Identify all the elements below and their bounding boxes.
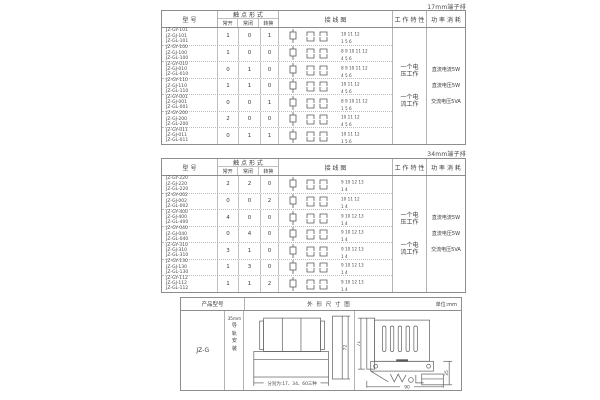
wiring-diagram-cell: 9 10 12 13 1 4 <box>278 210 392 226</box>
normally-closed-count: 4 <box>238 227 260 243</box>
wiring-diagram-cell: 10 11 12 4 5 6 <box>278 112 392 128</box>
model-cell: JZ-GY-010 JZ-GJ-010 JZ-GL-010 <box>162 62 217 78</box>
wiring-diagram: 9 10 12 13 1 4 <box>283 243 387 259</box>
model-cell: JZ-GY-130 JZ-GJ-130 JZ-GL-130 <box>162 260 217 276</box>
table-row: JZ-GY-011 JZ-GJ-011 JZ-GL-011 0 1 1 <box>162 127 392 144</box>
table-row: JZ-GY-110 JZ-GJ-110 JZ-GL-110 1 1 0 <box>162 78 392 95</box>
normally-open-count: 0 <box>217 95 238 111</box>
header-unit: 单位:mm <box>413 298 461 310</box>
normally-closed-count: 3 <box>238 260 260 276</box>
header-normally-closed: 常闭 <box>237 167 257 175</box>
front-height-value: 72 <box>343 345 349 351</box>
normally-closed-count: 0 <box>238 28 260 45</box>
changeover-count: 0 <box>260 243 278 259</box>
coil-icon <box>290 260 296 274</box>
power-line: 直流电流5W <box>432 66 460 73</box>
model-cell: JZ-GY-200 JZ-GJ-200 JZ-GL-200 <box>162 112 217 128</box>
header-contact-title: 触 点 形 式 <box>218 11 278 19</box>
normally-open-count: 0 <box>217 227 238 243</box>
changeover-count: 1 <box>260 95 278 111</box>
work-voltage-label: 一个电压工作 <box>398 212 421 226</box>
work-voltage-label: 一个电压工作 <box>398 64 421 78</box>
model-cell: JZ-GY-101 JZ-GJ-101 JZ-GL-101 <box>162 28 217 45</box>
normally-closed-count: 0 <box>238 46 260 62</box>
header-normally-open: 常开 <box>218 167 237 175</box>
table-row: JZ-GY-101 JZ-GJ-101 JZ-GL-101 1 0 1 <box>162 28 392 45</box>
wiring-diagram: 8 9 10 11 12 4 5 6 <box>283 45 387 61</box>
rail-mount-label: 导轨安装 <box>231 323 238 353</box>
header-model: 型 号 <box>162 11 217 27</box>
header-power-consumption: 功 率 消 耗 <box>426 11 465 27</box>
header-wiring-diagram: 接 线 图 <box>278 11 392 27</box>
terminal-numbers-top: 10 11 12 <box>341 197 360 202</box>
header-power-consumption: 功 率 消 耗 <box>426 159 465 175</box>
model-rows: JZ-GY-220 JZ-GJ-220 JZ-GL-220 2 2 0 <box>162 176 392 292</box>
model-rows: JZ-GY-101 JZ-GJ-101 JZ-GL-101 1 0 1 <box>162 28 392 144</box>
table-header: 型 号 触 点 形 式 常开 常闭 转换 接 线 图 工 作 特 性 功 率 消… <box>162 11 465 28</box>
coil-icon <box>290 277 296 291</box>
height-dimension: 72 <box>342 316 350 379</box>
header-contact-form: 触 点 形 式 常开 常闭 转换 <box>217 11 278 27</box>
normally-open-count: 4 <box>217 210 238 226</box>
wiring-diagram: 10 11 12 1 5 6 <box>283 28 387 44</box>
terminal-numbers-top: 9 10 12 13 <box>341 246 364 251</box>
changeover-count: 2 <box>260 194 278 210</box>
power-line: 直流电流5W <box>432 214 460 221</box>
coil-icon <box>290 244 296 258</box>
contact-symbols <box>307 180 327 189</box>
normally-open-count: 0 <box>217 62 238 78</box>
header-normally-open: 常开 <box>218 19 237 27</box>
coil-icon <box>290 211 296 225</box>
work-current-label: 一个电流工作 <box>398 94 421 108</box>
wiring-diagram-cell: 9 10 12 13 1 4 <box>278 260 392 276</box>
normally-closed-count: 0 <box>238 210 260 226</box>
wiring-diagram: 9 10 12 13 1 4 <box>283 210 387 226</box>
wiring-diagram-cell: 8 9 10 11 12 4 5 6 <box>278 46 392 62</box>
relay-front-outline <box>254 316 342 379</box>
changeover-count: 0 <box>260 62 278 78</box>
wiring-diagram: 9 10 12 13 1 4 <box>283 176 387 192</box>
wiring-diagram: 10 11 12 1 4 <box>283 193 387 209</box>
model-line: JZ-GL-040 <box>166 237 217 242</box>
coil-icon <box>290 129 296 143</box>
terminal-strip-tag-34mm: 34mm端子排 <box>161 149 466 158</box>
normally-closed-count: 1 <box>238 79 260 95</box>
table-row: JZ-GY-112 JZ-GJ-112 JZ-GL-112 1 1 2 <box>162 275 392 292</box>
wiring-diagram-cell: 10 11 12 4 5 6 <box>278 79 392 95</box>
changeover-count: 0 <box>260 260 278 276</box>
terminal-numbers-bottom: 1 4 <box>341 270 348 275</box>
wiring-diagram-cell: 10 11 12 1 4 <box>278 194 392 210</box>
model-line: JZ-GL-001 <box>166 105 217 110</box>
wiring-diagram: 9 10 12 13 1 4 <box>283 259 387 275</box>
changeover-count: 0 <box>260 210 278 226</box>
terminal-numbers-top: 9 10 12 13 <box>341 230 364 235</box>
model-line: JZ-GL-002 <box>166 204 217 209</box>
power-line: 交流电压5VA <box>431 246 461 253</box>
terminal-numbers-top: 9 10 12 13 <box>341 180 364 185</box>
coil-icon <box>290 194 296 208</box>
mounting-type-cell: 35mm 导轨安装 <box>225 311 244 390</box>
normally-closed-count: 1 <box>238 62 260 78</box>
table-row: JZ-GY-040 JZ-GJ-040 JZ-GL-040 0 4 0 <box>162 226 392 243</box>
wiring-diagram: 9 10 12 13 1 4 <box>283 226 387 242</box>
model-line: JZ-GL-130 <box>166 270 217 275</box>
changeover-count: 1 <box>260 128 278 144</box>
model-line: JZ-GL-220 <box>166 187 217 192</box>
contact-symbols <box>307 32 327 41</box>
header-normally-closed: 常闭 <box>237 19 257 27</box>
wiring-diagram: 8 9 10 11 12 1 5 6 <box>283 95 387 111</box>
terminal-numbers-bottom: 4 5 6 <box>341 89 352 94</box>
normally-closed-count: 0 <box>238 95 260 111</box>
terminal-numbers-bottom: 4 5 6 <box>341 122 352 127</box>
wiring-diagram: 10 11 12 4 5 6 <box>283 78 387 94</box>
model-line: JZ-GL-100 <box>166 56 217 61</box>
outline-dimension-table: 产品型号 外 形 尺 寸 图 单位:mm JZ-G 35mm 导轨安装 <box>180 297 462 391</box>
header-changeover: 转换 <box>258 167 278 175</box>
depth-value: 90 <box>404 384 410 389</box>
bottom-table-header: 产品型号 外 形 尺 寸 图 单位:mm <box>181 298 461 311</box>
changeover-count: 0 <box>260 46 278 62</box>
header-changeover: 转换 <box>258 19 278 27</box>
table-row: JZ-GY-130 JZ-GJ-130 JZ-GL-130 1 3 0 <box>162 259 392 276</box>
terminal-numbers-bottom: 1 4 <box>341 187 348 192</box>
model-line: JZ-GL-200 <box>166 122 217 127</box>
side-view-cell: 71 35 90 <box>355 311 461 390</box>
rail-height-value: 35 <box>444 370 450 376</box>
terminal-numbers-top: 8 9 10 11 12 <box>341 65 368 70</box>
model-cell: JZ-GY-220 JZ-GJ-220 JZ-GL-220 <box>162 176 217 193</box>
rail-size-label: 35mm <box>228 316 242 321</box>
spec-table-17mm: 型 号 触 点 形 式 常开 常闭 转换 接 线 图 工 作 特 性 功 率 消… <box>161 10 466 145</box>
terminal-numbers-bottom: 4 5 6 <box>341 56 352 61</box>
model-cell: JZ-GY-400 JZ-GJ-400 JZ-GL-400 <box>162 210 217 226</box>
wiring-diagram-cell: 10 11 12 1 5 6 <box>278 128 392 144</box>
front-view-drawing: 72 分别为:17、34、60三种 <box>244 312 354 389</box>
table-row: JZ-GY-220 JZ-GJ-220 JZ-GL-220 2 2 0 <box>162 176 392 193</box>
normally-closed-count: 2 <box>238 176 260 193</box>
terminal-numbers-bottom: 4 5 6 <box>341 73 352 78</box>
product-model-cell: JZ-G <box>181 311 225 390</box>
normally-open-count: 0 <box>217 128 238 144</box>
contact-symbols <box>307 197 327 206</box>
normally-closed-count: 1 <box>238 128 260 144</box>
normally-closed-count: 0 <box>238 194 260 210</box>
model-cell: JZ-GY-100 JZ-GJ-100 JZ-GL-100 <box>162 46 217 62</box>
front-view-cell: 72 分别为:17、34、60三种 <box>244 311 355 390</box>
normally-open-count: 1 <box>217 260 238 276</box>
wiring-diagram: 8 9 10 11 12 4 5 6 <box>283 62 387 78</box>
power-line: 交流电压5VA <box>431 98 461 105</box>
coil-icon <box>290 96 296 110</box>
contact-symbols <box>307 99 327 108</box>
contact-symbols <box>307 214 327 223</box>
wiring-diagram-cell: 8 9 10 11 12 4 5 6 <box>278 62 392 78</box>
terminal-numbers-top: 8 9 10 11 12 <box>341 49 368 54</box>
changeover-count: 1 <box>260 28 278 45</box>
model-line: JZ-GL-011 <box>166 138 217 143</box>
wiring-diagram-cell: 8 9 10 11 12 1 5 6 <box>278 95 392 111</box>
terminal-numbers-top: 9 10 12 13 <box>341 263 364 268</box>
changeover-count: 0 <box>260 176 278 193</box>
contact-symbols <box>307 280 327 289</box>
terminal-numbers-top: 10 11 12 <box>341 32 360 37</box>
header-outline-dimension: 外 形 尺 寸 图 <box>245 298 413 310</box>
terminal-numbers-bottom: 1 5 6 <box>341 139 352 144</box>
header-product-model: 产品型号 <box>181 298 245 310</box>
width-dimension-note: 分别为:17、34、60三种 <box>254 377 329 387</box>
coil-icon <box>290 79 296 93</box>
table-row: JZ-GY-200 JZ-GJ-200 JZ-GL-200 2 0 0 <box>162 111 392 128</box>
header-work-characteristic: 工 作 特 性 <box>392 11 426 27</box>
coil-icon <box>290 112 296 126</box>
table-row: JZ-GY-001 JZ-GJ-001 JZ-GL-001 0 0 1 <box>162 94 392 111</box>
normally-closed-count: 0 <box>238 112 260 128</box>
table-body: JZ-GY-101 JZ-GJ-101 JZ-GL-101 1 0 1 <box>162 28 465 144</box>
table-row: JZ-GY-310 JZ-GJ-310 JZ-GL-310 3 1 0 <box>162 242 392 259</box>
terminal-numbers-bottom: 1 5 6 <box>341 106 352 111</box>
table-body: JZ-GY-220 JZ-GJ-220 JZ-GL-220 2 2 0 <box>162 176 465 292</box>
normally-open-count: 2 <box>217 112 238 128</box>
model-cell: JZ-GY-001 JZ-GJ-001 JZ-GL-001 <box>162 95 217 111</box>
model-line: JZ-GL-310 <box>166 253 217 258</box>
wiring-diagram: 10 11 12 4 5 6 <box>283 111 387 127</box>
contact-symbols <box>307 132 327 141</box>
normally-closed-count: 1 <box>238 243 260 259</box>
wiring-diagram: 9 10 12 13 1 4 <box>283 276 387 292</box>
header-model: 型 号 <box>162 159 217 175</box>
header-contact-form: 触 点 形 式 常开 常闭 转换 <box>217 159 278 175</box>
terminal-numbers-bottom: 1 5 6 <box>341 39 352 44</box>
wiring-diagram-cell: 9 10 12 13 1 4 <box>278 243 392 259</box>
model-line: JZ-GL-112 <box>166 286 217 291</box>
power-line: 直流电压5W <box>432 230 460 237</box>
side-height-value: 71 <box>357 341 362 347</box>
model-line: JZ-GL-110 <box>166 89 217 94</box>
terminal-numbers-bottom: 1 4 <box>341 204 348 209</box>
model-cell: JZ-GY-110 JZ-GJ-110 JZ-GL-110 <box>162 79 217 95</box>
datasheet-page: 17mm端子排 34mm端子排 型 号 触 点 形 式 常开 常闭 转换 接 线… <box>0 0 600 400</box>
terminal-numbers-top: 8 9 10 11 12 <box>341 98 368 103</box>
work-characteristic-cell: 一个电压工作 一个电流工作 <box>392 176 426 292</box>
model-cell: JZ-GY-112 JZ-GJ-112 JZ-GL-112 <box>162 276 217 292</box>
power-line: 直流电压5W <box>432 82 460 89</box>
din-rail-clip <box>371 371 444 385</box>
terminal-numbers-bottom: 1 4 <box>341 254 348 259</box>
terminal-numbers-top: 9 10 12 13 <box>341 213 364 218</box>
table-row: JZ-GY-010 JZ-GJ-010 JZ-GL-010 0 1 0 <box>162 61 392 78</box>
terminal-numbers-bottom: 1 4 <box>341 237 348 242</box>
relay-side-outline <box>367 318 434 371</box>
normally-closed-count: 1 <box>238 276 260 292</box>
coil-icon <box>290 227 296 241</box>
normally-open-count: 1 <box>217 46 238 62</box>
bottom-table-body: JZ-G 35mm 导轨安装 <box>181 311 461 390</box>
power-consumption-cell: 直流电流5W 直流电压5W 交流电压5VA <box>426 28 465 144</box>
work-current-label: 一个电流工作 <box>398 242 421 256</box>
table-header: 型 号 触 点 形 式 常开 常闭 转换 接 线 图 工 作 特 性 功 率 消… <box>162 159 465 176</box>
contact-symbols <box>307 66 327 75</box>
changeover-count: 0 <box>260 227 278 243</box>
terminal-numbers-bottom: 1 4 <box>341 287 348 292</box>
model-cell: JZ-GY-011 JZ-GJ-011 JZ-GL-011 <box>162 128 217 144</box>
changeover-count: 0 <box>260 79 278 95</box>
terminal-numbers-top: 9 10 12 13 <box>341 279 364 284</box>
normally-open-count: 0 <box>217 194 238 210</box>
wiring-diagram-cell: 10 11 12 1 5 6 <box>278 28 392 45</box>
wiring-diagram-cell: 9 10 12 13 1 4 <box>278 276 392 292</box>
normally-open-count: 3 <box>217 243 238 259</box>
header-contact-title: 触 点 形 式 <box>218 159 278 167</box>
coil-icon <box>290 46 296 60</box>
changeover-count: 0 <box>260 112 278 128</box>
coil-icon <box>290 29 296 43</box>
model-cell: JZ-GY-310 JZ-GJ-310 JZ-GL-310 <box>162 243 217 259</box>
work-characteristic-cell: 一个电压工作 一个电流工作 <box>392 28 426 144</box>
terminal-numbers-top: 10 11 12 <box>341 131 360 136</box>
header-contact-subrow: 常开 常闭 转换 <box>218 19 278 27</box>
wiring-diagram: 10 11 12 1 5 6 <box>283 128 387 144</box>
normally-open-count: 1 <box>217 276 238 292</box>
contact-symbols <box>307 49 327 58</box>
model-cell: JZ-GY-002 JZ-GJ-002 JZ-GL-002 <box>162 194 217 210</box>
contact-symbols <box>307 82 327 91</box>
table-row: JZ-GY-002 JZ-GJ-002 JZ-GL-002 0 0 2 <box>162 193 392 210</box>
header-wiring-diagram: 接 线 图 <box>278 159 392 175</box>
contact-symbols <box>307 115 327 124</box>
contact-symbols <box>307 247 327 256</box>
normally-open-count: 1 <box>217 79 238 95</box>
side-dimensions: 71 35 90 <box>357 318 452 389</box>
coil-icon <box>290 177 296 191</box>
model-cell: JZ-GY-040 JZ-GJ-040 JZ-GL-040 <box>162 227 217 243</box>
wiring-diagram-cell: 9 10 12 13 1 4 <box>278 227 392 243</box>
power-consumption-cell: 直流电流5W 直流电压5W 交流电压5VA <box>426 176 465 292</box>
normally-open-count: 2 <box>217 176 238 193</box>
table-row: JZ-GY-400 JZ-GJ-400 JZ-GL-400 4 0 0 <box>162 209 392 226</box>
spec-table-34mm: 型 号 触 点 形 式 常开 常闭 转换 接 线 图 工 作 特 性 功 率 消… <box>161 158 466 293</box>
terminal-numbers-top: 10 11 12 <box>341 115 360 120</box>
contact-symbols <box>307 263 327 272</box>
normally-open-count: 1 <box>217 28 238 45</box>
terminal-numbers-bottom: 1 4 <box>341 221 348 226</box>
model-line: JZ-GL-400 <box>166 220 217 225</box>
side-view-drawing: 71 35 90 <box>357 312 459 389</box>
width-note: 分别为:17、34、60三种 <box>268 380 318 387</box>
model-line: JZ-GL-101 <box>166 39 217 44</box>
header-work-characteristic: 工 作 特 性 <box>392 159 426 175</box>
contact-symbols <box>307 230 327 239</box>
coil-icon <box>290 63 296 77</box>
changeover-count: 2 <box>260 276 278 292</box>
wiring-diagram-cell: 9 10 12 13 1 4 <box>278 176 392 193</box>
model-line: JZ-GL-010 <box>166 72 217 77</box>
header-contact-subrow: 常开 常闭 转换 <box>218 167 278 175</box>
table-row: JZ-GY-100 JZ-GJ-100 JZ-GL-100 1 0 0 <box>162 45 392 62</box>
terminal-numbers-top: 10 11 12 <box>341 82 360 87</box>
